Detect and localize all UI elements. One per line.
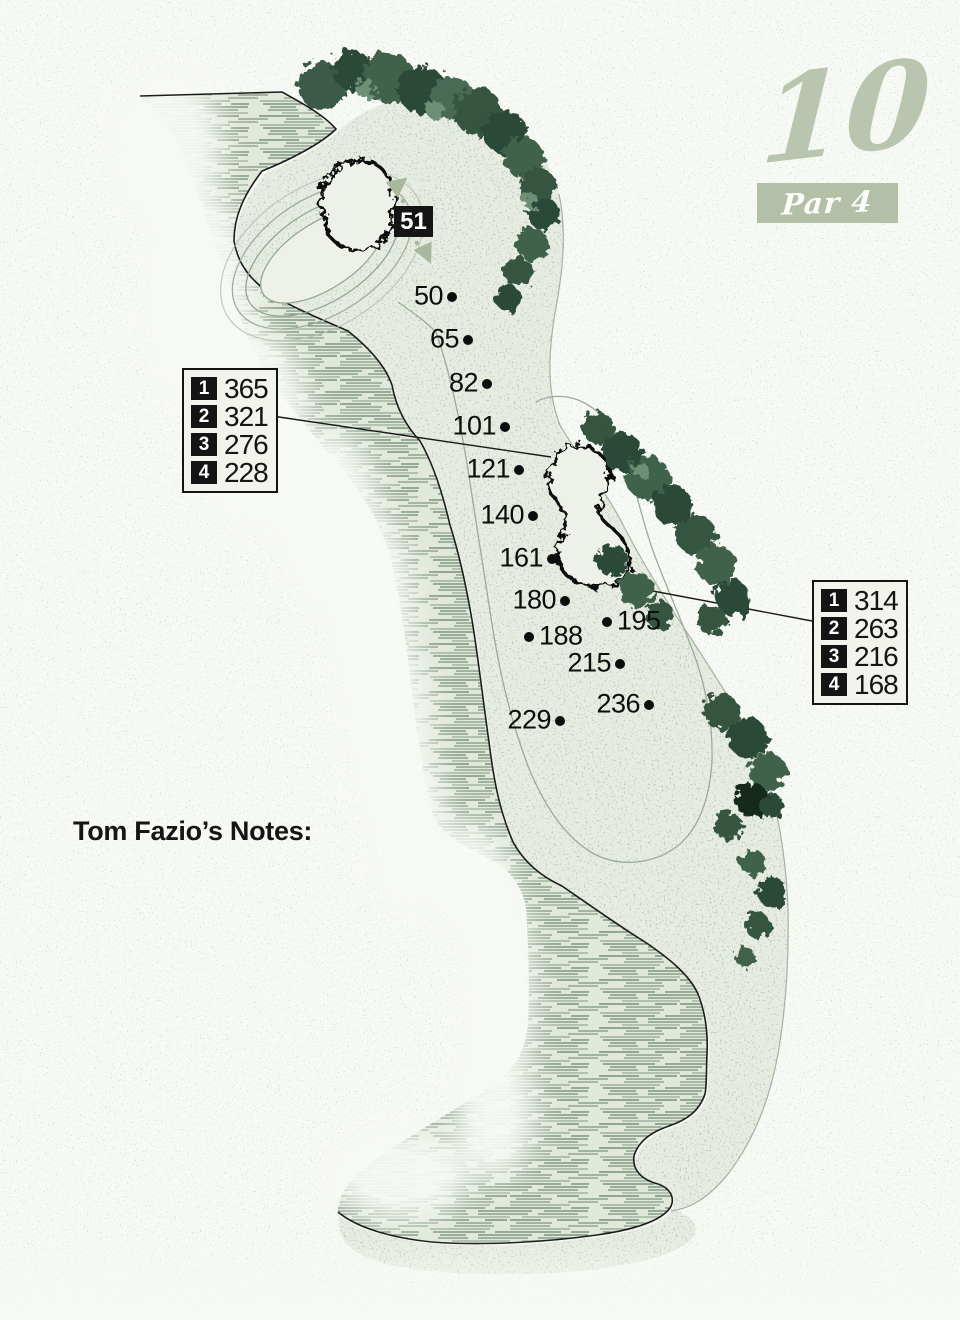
yardage-dot-icon [514, 465, 524, 475]
carry-row: 2 321 [191, 404, 268, 429]
yardage-dot-icon [615, 659, 625, 669]
yardage-dot-icon [447, 292, 457, 302]
yardage-dot-icon [482, 379, 492, 389]
yardage-label: 215 [567, 647, 611, 678]
yardage-dot-icon [547, 554, 557, 564]
yardage-label: 161 [499, 542, 543, 573]
notes-title: Tom Fazio’s Notes: [73, 816, 551, 847]
carry-row: 1 314 [821, 588, 898, 613]
yardage-label: 195 [617, 605, 661, 636]
carry-table-left: 1 365 2 321 3 276 4 228 [182, 368, 278, 493]
par-label: Par 4 [781, 184, 874, 221]
yardage-dot-icon [528, 511, 538, 521]
carry-row: 1 365 [191, 376, 268, 401]
yardage-label: 50 [414, 280, 443, 311]
carry-row: 4 168 [821, 672, 898, 697]
carry-row: 4 228 [191, 460, 268, 485]
yardage-label: 65 [430, 323, 459, 354]
yardage-dot-icon [500, 422, 510, 432]
yardage-label: 121 [466, 453, 510, 484]
yardage-book-page: 10 Par 4 1 365 2 321 3 276 4 228 1 314 2… [0, 0, 960, 1320]
tee-number-badge: 4 [191, 461, 217, 484]
tee-number-badge: 1 [821, 589, 847, 612]
yardage-label: 229 [507, 704, 551, 735]
yardage-dot-icon [644, 700, 654, 710]
tee-number-badge: 1 [191, 377, 217, 400]
carry-yards: 168 [854, 669, 898, 701]
yardage-label: 140 [480, 499, 524, 530]
tee-number-badge: 3 [821, 645, 847, 668]
carry-yards: 228 [224, 457, 268, 489]
green-depth-badge: 51 [394, 206, 433, 237]
carry-row: 3 216 [821, 644, 898, 669]
yardage-label: 82 [449, 367, 478, 398]
tee-number-badge: 4 [821, 673, 847, 696]
architect-notes: Tom Fazio’s Notes: [73, 816, 551, 858]
yardage-label: 180 [512, 584, 556, 615]
yardage-dot-icon [602, 617, 612, 627]
yardage-label: 101 [452, 410, 496, 441]
yardage-dot-icon [560, 596, 570, 606]
tee-number-badge: 2 [821, 617, 847, 640]
yardage-dot-icon [524, 632, 534, 642]
hole-number: 10 [757, 29, 927, 197]
tee-number-badge: 2 [191, 405, 217, 428]
carry-row: 3 276 [191, 432, 268, 457]
par-banner: Par 4 [757, 183, 898, 223]
yardage-label: 236 [596, 688, 640, 719]
yardage-dot-icon [463, 335, 473, 345]
carry-row: 2 263 [821, 616, 898, 641]
carry-table-right: 1 314 2 263 3 216 4 168 [812, 580, 908, 705]
yardage-dot-icon [555, 716, 565, 726]
tee-number-badge: 3 [191, 433, 217, 456]
